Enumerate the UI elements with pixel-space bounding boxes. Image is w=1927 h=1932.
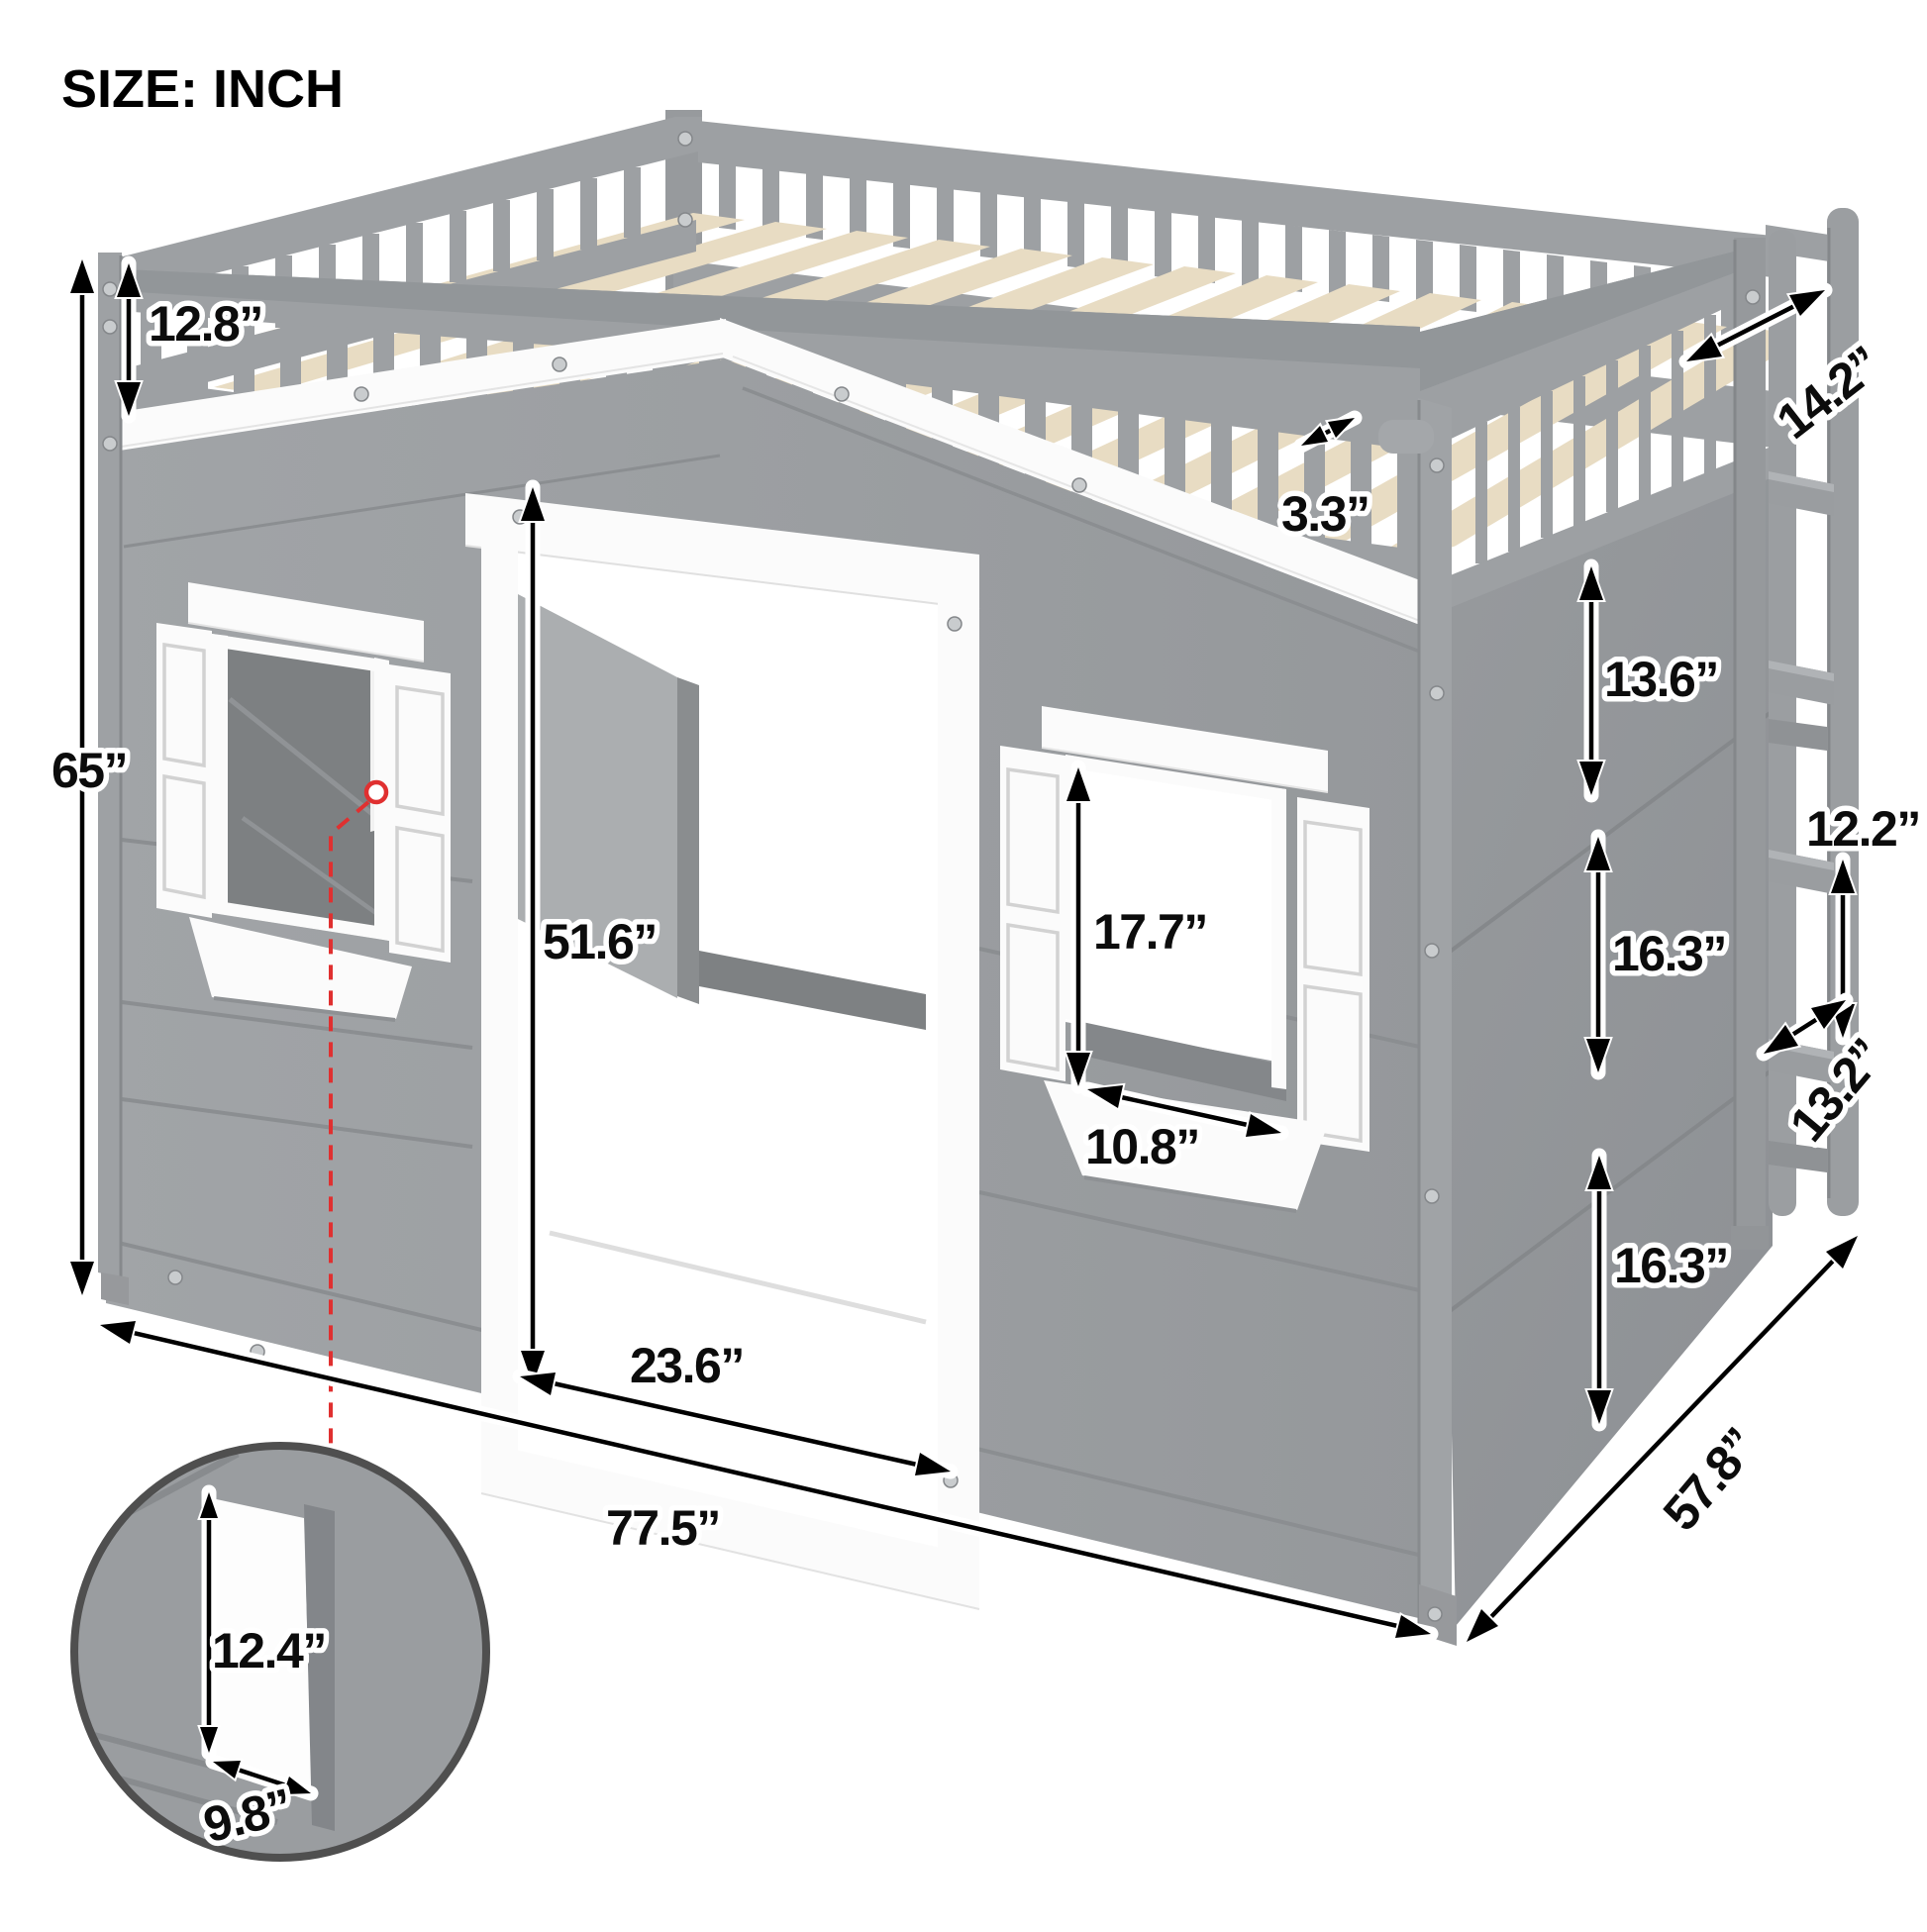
svg-text:10.8”: 10.8” — [1085, 1119, 1199, 1174]
svg-text:12.8”: 12.8” — [149, 296, 262, 352]
svg-text:16.3”: 16.3” — [1612, 926, 1726, 981]
svg-text:17.7”: 17.7” — [1093, 904, 1207, 960]
svg-text:77.5”: 77.5” — [606, 1500, 720, 1556]
svg-text:SIZE: INCH: SIZE: INCH — [61, 59, 344, 119]
svg-text:12.4”: 12.4” — [212, 1623, 326, 1678]
svg-text:51.6”: 51.6” — [543, 914, 657, 969]
svg-text:65”: 65” — [51, 743, 127, 798]
svg-text:16.3”: 16.3” — [1614, 1238, 1728, 1293]
svg-text:23.6”: 23.6” — [630, 1338, 744, 1393]
svg-text:3.3”: 3.3” — [1281, 486, 1369, 542]
svg-text:12.2”: 12.2” — [1806, 801, 1920, 857]
svg-text:13.6”: 13.6” — [1604, 652, 1718, 707]
